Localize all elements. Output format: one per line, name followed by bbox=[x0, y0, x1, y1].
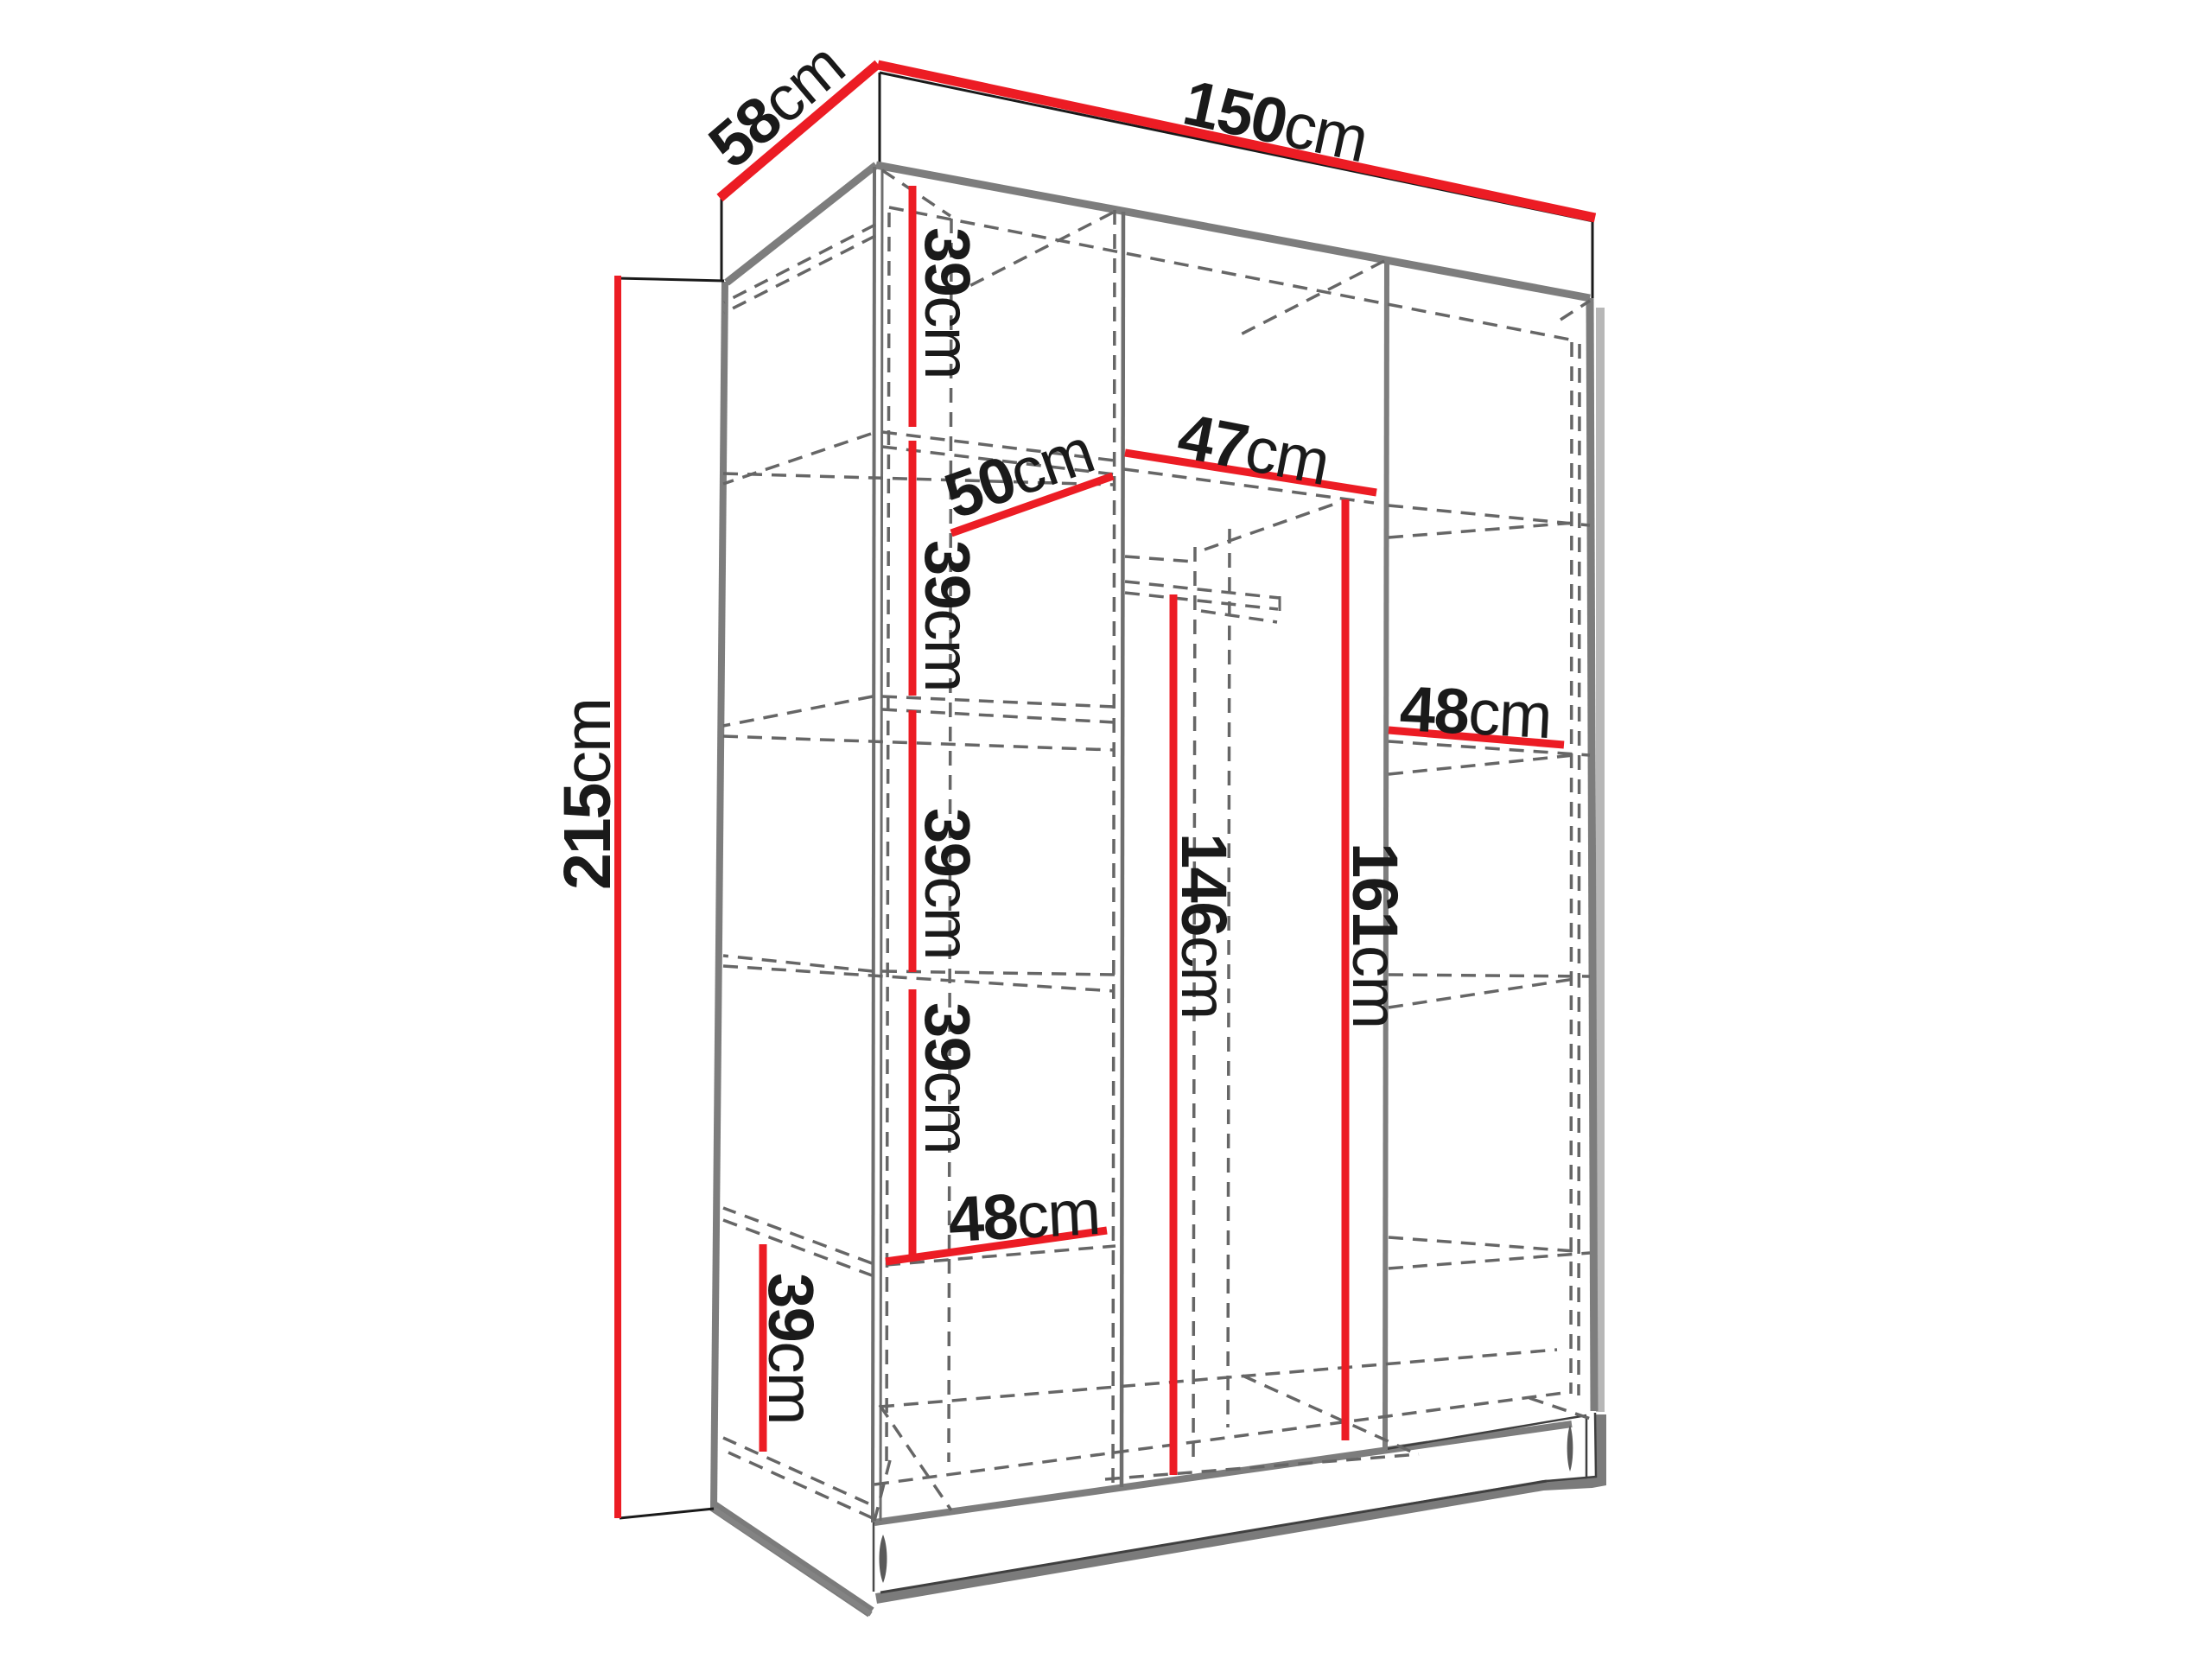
svg-text:39cm: 39cm bbox=[912, 227, 983, 378]
svg-text:39cm: 39cm bbox=[912, 1002, 983, 1154]
svg-text:48cm: 48cm bbox=[946, 1176, 1101, 1255]
svg-text:48cm: 48cm bbox=[1398, 672, 1553, 752]
svg-text:39cm: 39cm bbox=[912, 808, 983, 959]
svg-text:215cm: 215cm bbox=[550, 699, 625, 890]
svg-text:39cm: 39cm bbox=[912, 540, 983, 691]
svg-text:39cm: 39cm bbox=[755, 1273, 827, 1424]
svg-text:146cm: 146cm bbox=[1168, 833, 1240, 1019]
svg-text:161cm: 161cm bbox=[1339, 842, 1411, 1028]
